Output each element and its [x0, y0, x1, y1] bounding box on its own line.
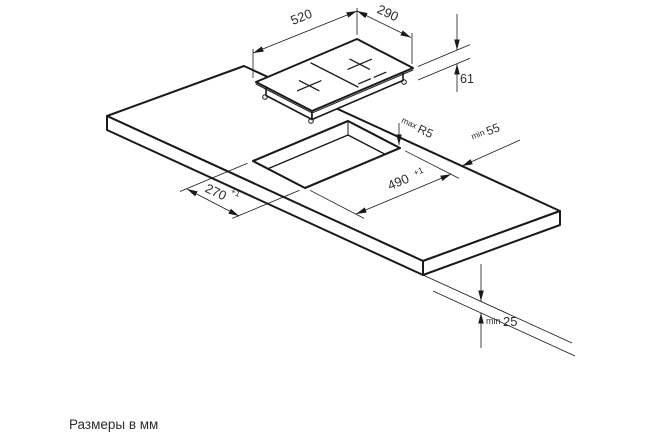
- dim-bottom-clearance-label: min 25: [486, 314, 518, 329]
- hob-installation-diagram-page: 520 290 61 max R5 min 55: [0, 0, 666, 444]
- dim-back-clearance-label: min 55: [469, 120, 502, 144]
- dim-hob-height-label: 61: [460, 72, 474, 86]
- dim-corner-radius-label: max R5: [399, 114, 436, 141]
- dim-hob-height: 61: [418, 14, 474, 92]
- dim-back-clearance: min 55: [462, 120, 520, 166]
- installation-drawing-canvas: 520 290 61 max R5 min 55: [0, 0, 666, 444]
- dim-hob-length-label: 520: [288, 6, 314, 28]
- units-note: Размеры в мм: [69, 417, 158, 432]
- dim-bottom-clearance: min 25: [423, 264, 575, 356]
- dim-hob-width-label: 290: [375, 2, 401, 25]
